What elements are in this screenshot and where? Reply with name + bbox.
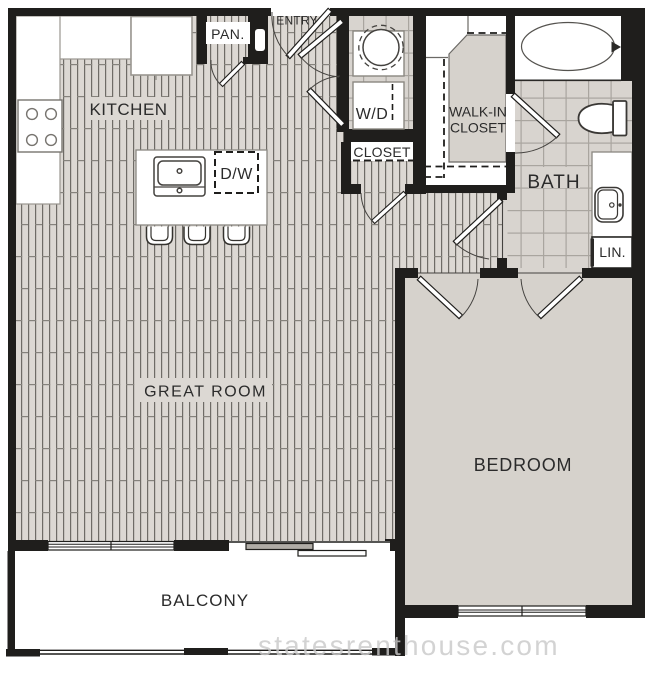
svg-text:KITCHEN: KITCHEN [89,100,167,119]
svg-text:CLOSET: CLOSET [353,144,410,160]
svg-text:PAN.: PAN. [211,26,245,42]
svg-text:BATH: BATH [527,172,580,193]
svg-text:ENTRY: ENTRY [276,14,317,28]
svg-text:WALK-IN: WALK-IN [449,104,507,120]
svg-text:LIN.: LIN. [599,244,625,260]
svg-text:BEDROOM: BEDROOM [474,455,573,475]
svg-text:D/W: D/W [220,166,253,183]
svg-text:CLOSET: CLOSET [450,120,506,136]
svg-text:BALCONY: BALCONY [161,591,249,610]
svg-text:statesrenthouse.com: statesrenthouse.com [258,630,560,661]
svg-text:W/D: W/D [356,106,389,123]
svg-text:GREAT ROOM: GREAT ROOM [144,384,267,401]
